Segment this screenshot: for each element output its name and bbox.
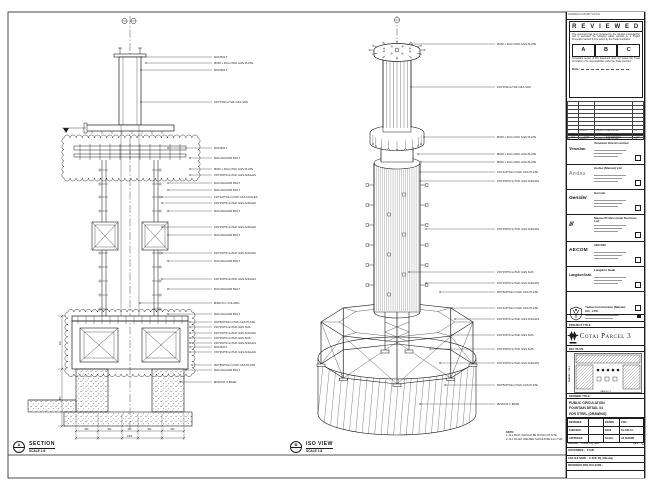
doc-row-value: [604, 463, 605, 469]
company-address-bar: [594, 225, 626, 226]
drawing-sheet: M20 BOLTØ340 x 20mmTHK G&S PLATEM20 BOLT…: [0, 0, 650, 488]
company-logo: Aedas: [569, 171, 586, 177]
reviewed-date-label: Date :: [572, 67, 580, 71]
drawing-text: M20 BOLT: [214, 345, 228, 349]
contractor-address-bar: [585, 318, 613, 319]
company-address-bar: [594, 200, 626, 201]
company-checkbox[interactable]: [635, 282, 641, 288]
key-plan-side-label: PARCEL 1 OF 3: [569, 366, 571, 382]
drawing-text: Ø2000 R.C BASE: [497, 402, 519, 406]
drawing-text: 150*150*6mmTHK G&S ANGLES: [214, 173, 256, 177]
appr-value: -: [589, 419, 604, 427]
doc-row: CAD FILE NAME :P-SUB_PQ_0001.dwg: [567, 456, 644, 463]
company-name: Langdon Seah: [594, 269, 638, 272]
reviewed-body-top: This document has been reviewed by the r…: [570, 32, 642, 44]
appr-value: -: [589, 427, 604, 435]
drawing-text: 150*150*6mmTHK G&S ANGLES: [497, 317, 539, 321]
drawing-text: M20 ANCHOR BOLT: [214, 368, 240, 372]
drawing-text: 120*120*10mmTHK G&S ANGLES: [214, 195, 258, 199]
doc-row: DWG NO :P-SUB_PQ_0001REV :C: [567, 441, 644, 448]
drawing-title: PUBLIC CIRCULATION FOUNTAIN DETAIL 04 FO…: [567, 399, 644, 418]
project-title-row: Cotai Parcel 3: [567, 328, 644, 346]
reviewed-date-line: Date :: [570, 65, 642, 73]
appr-value: 04-JUN-13: [620, 427, 644, 435]
doc-row-value: P-SUB_PQ_0001: [580, 441, 599, 447]
company-address-bar: [594, 181, 618, 182]
section-marker-sheet: -: [14, 447, 24, 452]
rev-label: REV :: [632, 441, 640, 447]
doc-row: REFERENCE DWG FILE NAME :: [567, 463, 644, 470]
drawing-text: M20 ANCHOR BOLT: [214, 287, 240, 291]
iso-marker-bubble: B -: [290, 441, 302, 453]
consultant-row-aedas-macau-ltd-: AedasAedas (Macau) Ltd.: [567, 165, 644, 190]
drawing-text: Ø340 x 20mmTHK G&S PLATE: [214, 61, 253, 65]
company-address-bar: [594, 206, 618, 207]
drawing-text: 150*150*6mmTHK G&S ANGLES: [214, 225, 256, 229]
drawing-text: 150*150*6mmTHK G&S ANGLES: [214, 201, 256, 205]
revision-table: C04-06-13ISSUED FOR APPROVALCWB28-05-13I…: [567, 101, 644, 135]
title-block: 04/06/2013 14:05 9977 A4 P.01 R E V I E …: [566, 12, 645, 478]
company-name: Macau Professional Services Ltd.: [594, 217, 638, 224]
key-plan-caption: PARCEL 3: [567, 391, 644, 393]
drawing-text: 300: [108, 429, 113, 431]
consultant-row-gensler: GenslerGensler: [567, 190, 644, 215]
drawing-text: 150*150*6mmTHK G&S SHS: [214, 325, 251, 329]
iso-scale-text: SCALE 1:8: [306, 449, 333, 453]
approval-table: DESIGNED-DRAWNCWCCHECKED-DATE04-JUN-13AP…: [567, 418, 644, 443]
drawing-text: 150*150mmTHK G&S SHS: [497, 85, 531, 89]
company-checkbox[interactable]: [635, 180, 641, 186]
doc-row: JOB NUMBER :P-SUB: [567, 448, 644, 455]
drawing-text: 150*150*6mmTHK G&S ANGLES: [497, 179, 539, 183]
company-address-bar: [594, 252, 626, 253]
company-name: AECOM: [594, 244, 638, 247]
doc-row-label: REFERENCE DWG FILE NAME :: [567, 463, 604, 469]
drawing-text: M20 ANCHOR BOLT: [214, 259, 240, 263]
drawing-text: 2400: [127, 436, 133, 438]
cad-linework: M20 BOLTØ340 x 20mmTHK G&S PLATEM20 BOLT…: [0, 0, 650, 488]
iso-marker-sheet: -: [291, 447, 301, 452]
drawing-text: Ø340 x 20mmTHK G&S PLATE: [497, 42, 536, 46]
drawing-text: 600: [85, 429, 90, 431]
company-address-bar: [594, 156, 618, 157]
reviewed-date-blank[interactable]: [581, 66, 629, 70]
section-title-text: SECTION: [29, 441, 55, 449]
company-name: Gensler: [594, 192, 638, 195]
key-plan-map: [574, 353, 642, 393]
rev-value: C: [641, 441, 644, 447]
doc-row-value: P-SUB_PQ_0001.dwg: [588, 456, 612, 462]
doc-row-label: CAD FILE NAME :: [567, 456, 588, 462]
company-logo: LangdonSeah: [569, 273, 591, 277]
section-scale-text: SCALE 1:8: [29, 449, 55, 453]
doc-row-label: JOB NUMBER :: [567, 448, 586, 454]
section-view-title: SECTION SCALE 1:8: [29, 441, 55, 453]
drawing-text: Ø340 x 20mmTHK G&S PLATE: [497, 160, 536, 164]
drawing-text: 500*500*20mmTHK G&S PLATE: [214, 363, 255, 367]
drawing-text: Ø340 x 20mmTHK G&S PLATE: [214, 167, 253, 171]
drawing-text: 150*150*6mmTHK G&S ANGLES: [214, 350, 256, 354]
status-option-c[interactable]: C: [617, 44, 640, 57]
document-number-rows: DWG NO :P-SUB_PQ_0001REV :CJOB NUMBER :P…: [567, 441, 644, 471]
doc-row-label: DWG NO :: [567, 441, 580, 447]
appr-value: CWC: [620, 419, 644, 427]
company-address-bar: [594, 280, 622, 281]
drawing-text: Ø300 x 20mmTHK G&S PLATE: [497, 152, 536, 156]
consultant-row-aecom: AECOMAECOM: [567, 242, 644, 267]
consultant-row-langdon-seah: LangdonSeahLangdon Seah: [567, 267, 644, 292]
note-item: 2. ALL FILLET WELDED SHOULD BE 6mm THK.: [506, 438, 566, 441]
drawing-text: 500*500*20mmTHK G&S PLATE: [497, 383, 538, 387]
company-address-bar: [594, 258, 618, 259]
iso-view: [317, 16, 477, 435]
drawing-title-line: FOR STEEL (DRAWING): [569, 412, 644, 418]
drawing-text: 120*120*10mmTHK G&S PLATE: [497, 170, 538, 174]
drawing-text: 150*150*6mmTHK G&S ANGLES: [497, 361, 539, 365]
contractor-address-bar: [585, 315, 619, 316]
drawing-text: 150*150*6mmTHK G&S SHS: [214, 336, 251, 340]
reviewed-stamp: R E V I E W E D This document has been r…: [569, 21, 643, 98]
iso-title-text: ISO VIEW: [306, 441, 333, 449]
drawing-text: Ø2000 R.C BASE: [214, 380, 236, 384]
company-address-bar: [594, 178, 622, 179]
reviewed-title: R E V I E W E D: [570, 22, 642, 32]
status-option-b[interactable]: B: [595, 44, 618, 57]
contractor-stamp-square: [637, 314, 641, 318]
section-marker-bubble: A -: [13, 441, 25, 453]
drawing-text: 120*120*10mmTHK G&S PLATE: [497, 306, 538, 310]
key-plan: PARCEL 1 OF 3 PARCEL 3: [567, 352, 644, 394]
iso-view-title: ISO VIEW SCALE 1:8: [306, 441, 333, 453]
company-logo: ///: [569, 221, 573, 228]
company-name: Venetian Orient Limited: [594, 142, 638, 145]
company-logo: Venetian: [569, 146, 586, 151]
doc-row-value: P-SUB: [586, 448, 594, 454]
company-address-bar: [594, 175, 626, 176]
notes-block: NOTE: 1. ALL BOLT SHOULD BE FIXING ON SI…: [506, 431, 566, 441]
company-address-bar: [594, 231, 618, 232]
appr-label: DRAWN: [604, 419, 620, 427]
drawing-text: M20 ANCHOR BOLT: [214, 312, 240, 316]
status-option-a[interactable]: A: [572, 44, 595, 57]
reviewed-status-options: ABC: [570, 44, 642, 57]
drawing-text: 600: [60, 340, 62, 345]
company-address-bar: [594, 283, 618, 284]
drawing-text: M20 ANCHOR BOLT: [214, 233, 240, 237]
company-address-bar: [594, 277, 626, 278]
appr-label: DESIGNED: [568, 419, 589, 427]
drawing-text: 150*150*6mmTHK G&S SHS: [497, 347, 534, 351]
appr-label: CHECKED: [568, 427, 589, 435]
drawing-text: 150*150*6mmTHK G&S ANGLES: [214, 277, 256, 281]
company-checkbox[interactable]: [635, 205, 641, 211]
drawing-text: 450: [60, 395, 62, 400]
drawing-text: 450: [128, 429, 133, 431]
company-address-bar: [594, 150, 626, 151]
company-address-bar: [594, 228, 622, 229]
drawing-text: 150*150*6mmTHK G&S ANGLES: [214, 331, 256, 335]
company-address-bar: [594, 203, 622, 204]
contractor-crest-icon: [569, 306, 583, 321]
drawing-text: M20 ANCHOR BOLT: [214, 156, 240, 160]
drawing-text: Ø340 x 20mmTHK G&S PLATE: [497, 135, 536, 139]
consultant-row-venetian-orient-limited: VenetianVenetian Orient Limited: [567, 140, 644, 165]
drawing-text: 150*150mmTHK G&S SHS: [214, 100, 248, 104]
contractor-block: Yadea Construction (Macau) CO., LTD.: [567, 304, 644, 322]
drawing-text: 600: [171, 429, 176, 431]
contractor-name: Yadea Construction (Macau) CO., LTD.: [585, 306, 631, 313]
notes-list: 1. ALL BOLT SHOULD BE FIXING ON SITE.2. …: [506, 434, 566, 441]
company-name: Aedas (Macau) Ltd.: [594, 167, 638, 170]
drawing-text: 600*600*20mmTHK G&S PLATE: [214, 320, 255, 324]
drawing-text: M20 ANCHOR BOLT: [214, 209, 240, 213]
drawing-text: M20 BOLT: [214, 146, 228, 150]
drawing-text: 150*150*6mmTHK G&S ANGLES: [497, 227, 539, 231]
company-address-bar: [594, 153, 622, 154]
drawing-text: 300: [148, 429, 153, 431]
company-checkbox[interactable]: [635, 232, 641, 238]
drawing-text: 150*150*6mmTHK G&S ANGLES: [214, 251, 256, 255]
drawing-text: M20 ANCHOR BOLT: [214, 188, 240, 192]
company-checkbox[interactable]: [635, 257, 641, 263]
section-view: [28, 16, 200, 428]
drawing-text: 150*150*6mmTHK G&S SHS: [497, 333, 534, 337]
consultant-row-macau-professional-services-ltd-: ///Macau Professional Services Ltd.: [567, 215, 644, 242]
drawing-text: 600*600*20mmTHK G&S PLATE: [497, 290, 538, 294]
drawing-text: 150*150*6mmTHK G&S SHS: [497, 270, 534, 274]
drawing-text: M20 BOLT: [214, 68, 228, 72]
drawing-text: Ø300 R.C COLUMN: [214, 301, 239, 305]
ornament-icon: [567, 331, 576, 344]
consultant-list: VenetianVenetian Orient LimitedAedasAeda…: [567, 140, 644, 315]
fax-stamp-line: 04/06/2013 14:05 9977 A4 P.01: [567, 12, 644, 20]
company-logo: AECOM: [569, 248, 588, 253]
drawing-text: M20 ANCHOR BOLT: [214, 181, 240, 185]
drawing-text: 150*150*6mmTHK G&S ANGLES: [497, 281, 539, 285]
reviewed-body-bottom: Consultant review of this document does …: [570, 57, 642, 66]
section-labels: M20 BOLTØ340 x 20mmTHK G&S PLATEM20 BOLT…: [139, 55, 257, 384]
company-address-bar: [594, 255, 622, 256]
drawing-text: M20 BOLT: [214, 55, 228, 59]
company-logo: Gensler: [569, 196, 587, 201]
company-checkbox[interactable]: [635, 155, 641, 161]
appr-label: DATE: [604, 427, 620, 435]
